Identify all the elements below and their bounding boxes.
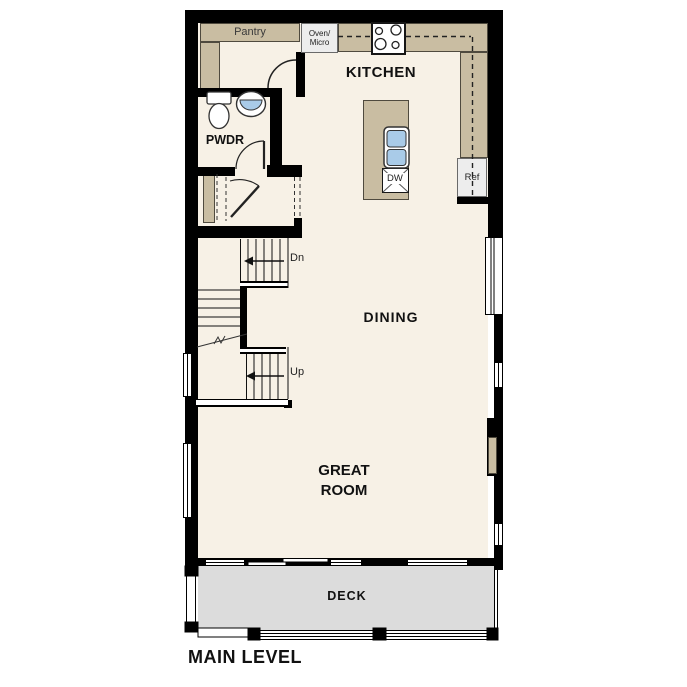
- oven-micro-label-line2: Micro: [310, 38, 330, 47]
- window-right-2: [494, 362, 503, 388]
- window-right-1: [485, 237, 503, 315]
- wall-right-upper: [488, 10, 503, 238]
- wall-top: [185, 10, 503, 23]
- pantry-label: Pantry: [220, 26, 280, 38]
- wall-entry-right: [267, 165, 302, 177]
- stairs-up-landing: [240, 347, 286, 354]
- great-room-label: GREAT ROOM: [311, 461, 377, 502]
- stairs-up-label: Up: [290, 366, 304, 378]
- wall-entry-bottom: [185, 226, 302, 238]
- kitchen-label: KITCHEN: [336, 64, 426, 82]
- pwdr-label: PWDR: [196, 133, 254, 148]
- oven-micro-box: Oven/ Micro: [301, 23, 338, 53]
- window-back-1: [205, 559, 245, 566]
- window-back-3: [407, 559, 468, 566]
- window-left-2: [183, 443, 192, 518]
- stairs-down-landing: [240, 281, 288, 288]
- window-back-2: [330, 559, 362, 566]
- kitchen-counter-top: [338, 23, 488, 52]
- pantry-shelf-left: [200, 42, 220, 90]
- cooktop-icon: [371, 22, 406, 55]
- dining-label: DINING: [346, 309, 436, 326]
- refrigerator-box: Ref: [457, 158, 487, 197]
- wall-pwdr-bottom: [198, 167, 235, 176]
- window-right-3: [494, 523, 503, 546]
- main-level-label: MAIN LEVEL: [188, 647, 348, 669]
- entry-closet: [203, 172, 215, 223]
- refrigerator-label: Ref: [465, 172, 480, 183]
- wall-oven-stub: [296, 52, 305, 97]
- wall-pwdr-right: [270, 88, 282, 177]
- window-left-1: [183, 353, 192, 397]
- dishwasher-label: DW: [386, 173, 404, 184]
- stairs-down-label: Dn: [290, 252, 304, 264]
- kitchen-counter-right: [460, 52, 488, 158]
- oven-micro-label-line1: Oven/: [309, 29, 330, 38]
- wall-pwdr-top: [198, 88, 272, 97]
- wall-ref-stub: [457, 197, 488, 204]
- wall-stair-divider: [240, 281, 247, 349]
- deck-label: DECK: [314, 589, 380, 604]
- stairs-floor-edge: [196, 399, 288, 407]
- floor-plan: Oven/ Micro Ref: [0, 0, 687, 687]
- fireplace-niche: [488, 437, 497, 474]
